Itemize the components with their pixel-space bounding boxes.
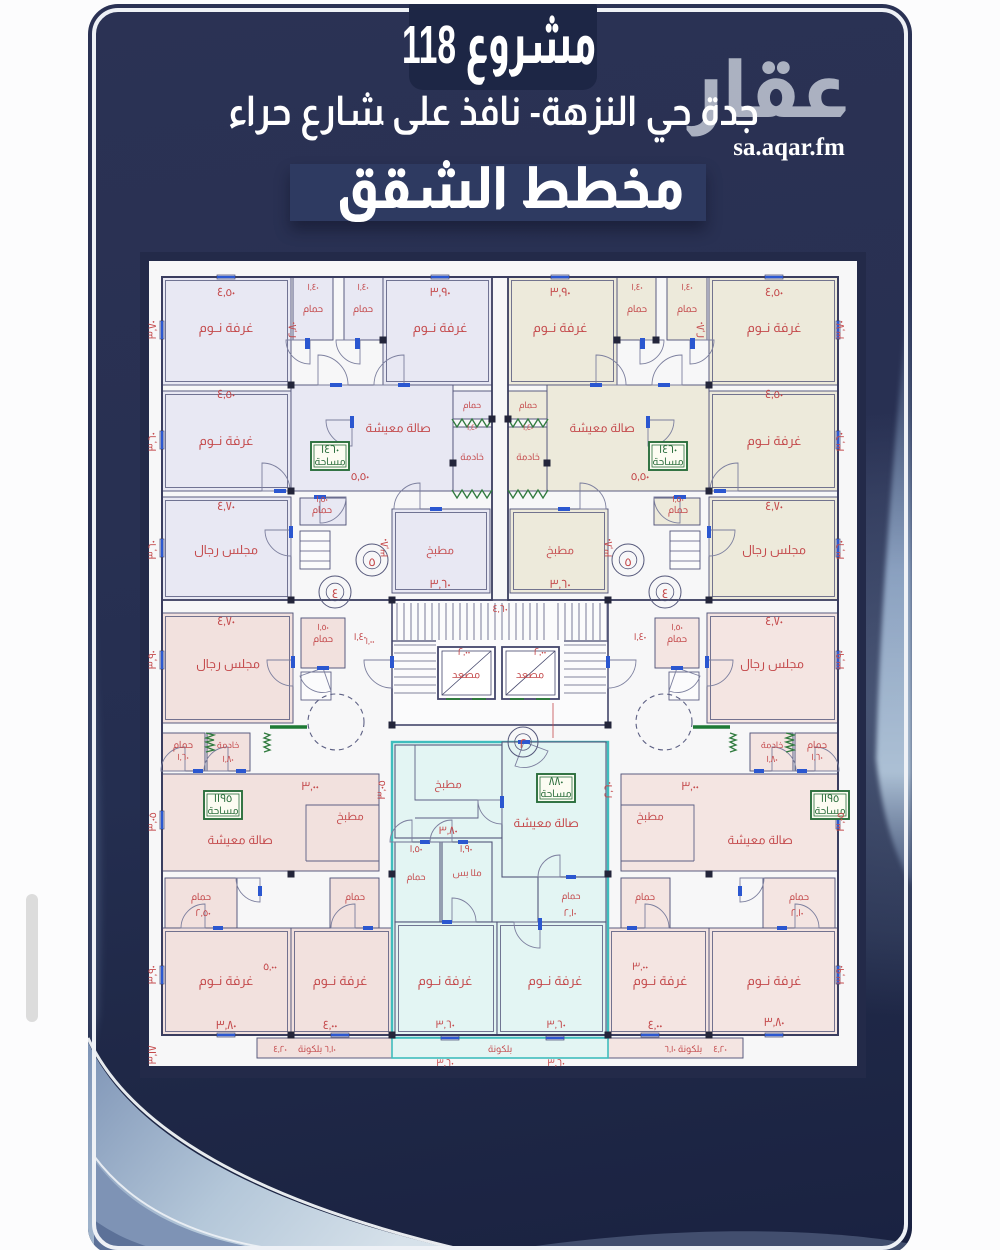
svg-text:118: 118	[402, 15, 456, 75]
svg-text:sa.aqar.fm: sa.aqar.fm	[733, 134, 845, 161]
